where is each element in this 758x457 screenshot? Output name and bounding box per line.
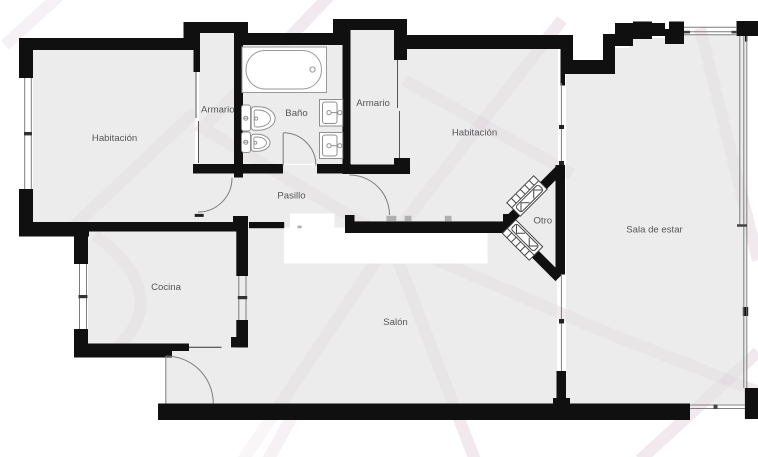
svg-text:Otro: Otro: [533, 215, 552, 226]
svg-text:Armario: Armario: [201, 104, 235, 115]
svg-text:Armario: Armario: [356, 98, 390, 109]
svg-text:Salón: Salón: [383, 317, 408, 328]
svg-text:Habitación: Habitación: [452, 128, 497, 139]
svg-text:Habitación: Habitación: [92, 133, 137, 144]
svg-text:Pasillo: Pasillo: [277, 191, 305, 202]
svg-text:Baño: Baño: [285, 108, 307, 119]
svg-text:Cocina: Cocina: [151, 282, 182, 293]
svg-text:Sala de estar: Sala de estar: [626, 225, 683, 236]
